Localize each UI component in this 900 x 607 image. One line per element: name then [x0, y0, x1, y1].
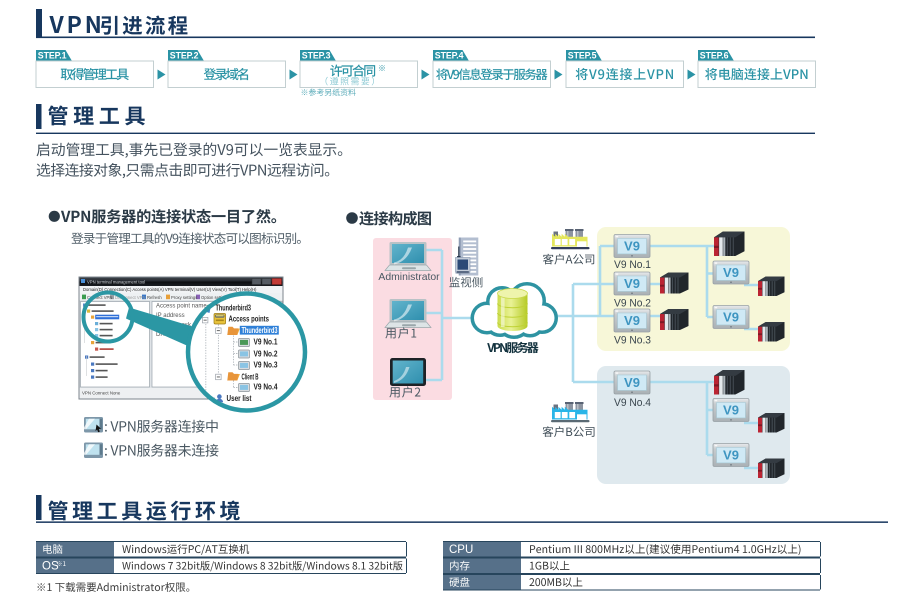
svg-text:V9 No.3: V9 No.3 [254, 360, 278, 370]
svg-text:V9: V9 [723, 265, 739, 280]
svg-text:V9: V9 [723, 447, 739, 462]
svg-text:V9 No.1: V9 No.1 [254, 337, 278, 347]
svg-text:V9: V9 [624, 375, 640, 390]
svg-text:Access points: Access points [229, 313, 270, 323]
svg-text:Proxy settings: Proxy settings [171, 295, 197, 300]
svg-text:V9 No.4: V9 No.4 [614, 397, 651, 409]
svg-text:V9 No.1: V9 No.1 [614, 259, 651, 271]
svg-text:V9: V9 [723, 309, 739, 324]
svg-text:Access point name: Access point name [156, 304, 207, 310]
svg-text:Thunderbird3: Thunderbird3 [216, 302, 252, 312]
svg-text:STEP.1: STEP.1 [38, 51, 67, 61]
svg-text:V9 No.2: V9 No.2 [614, 298, 651, 310]
svg-text:STEP.4: STEP.4 [435, 51, 464, 61]
svg-text:CPU: CPU [449, 544, 473, 556]
svg-text:STEP.6: STEP.6 [700, 51, 729, 61]
svg-text:Thunderbird3: Thunderbird3 [242, 326, 278, 335]
svg-text:User list: User list [227, 393, 252, 403]
svg-text:V9: V9 [723, 402, 739, 417]
svg-text:V9: V9 [624, 238, 640, 253]
svg-text:V9 No.4: V9 No.4 [254, 382, 278, 392]
svg-text:V9 No.3: V9 No.3 [614, 335, 651, 347]
svg-text:V9: V9 [624, 313, 640, 328]
svg-text:STEP.5: STEP.5 [568, 51, 597, 61]
svg-text:VPN Connect None: VPN Connect None [82, 391, 121, 396]
svg-text:V9: V9 [624, 276, 640, 291]
svg-text:V9 No.2: V9 No.2 [254, 348, 278, 358]
svg-text:Refresh: Refresh [147, 295, 162, 300]
svg-text:STEP.3: STEP.3 [302, 51, 331, 61]
svg-text:Client B: Client B [242, 371, 259, 381]
svg-text:OS: OS [42, 561, 59, 573]
svg-text:STEP.2: STEP.2 [170, 51, 199, 61]
svg-text:VPN terminal management tool: VPN terminal management tool [87, 280, 145, 285]
svg-text:Administrator: Administrator [378, 272, 440, 283]
